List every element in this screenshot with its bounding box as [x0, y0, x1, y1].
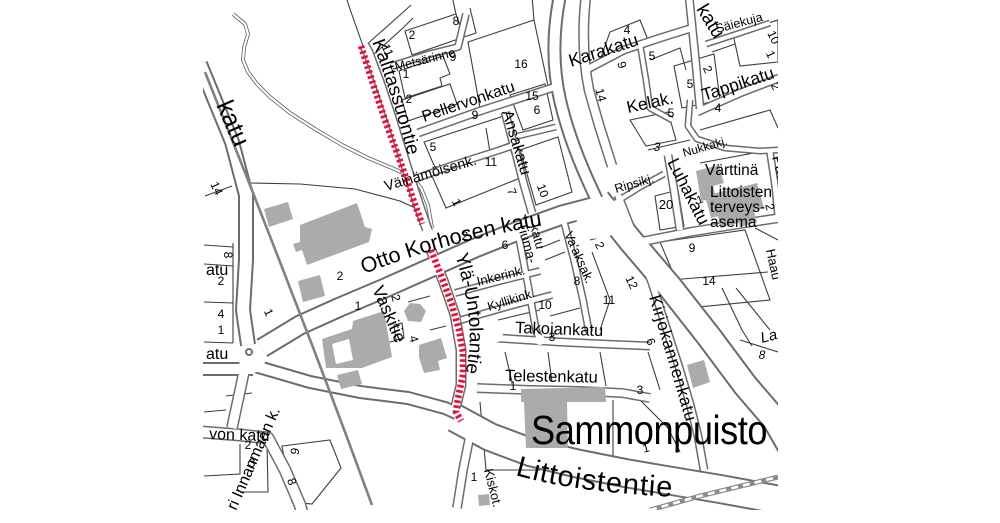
svg-text:3: 3: [249, 456, 256, 470]
svg-text:Telestenkatu: Telestenkatu: [505, 367, 598, 387]
svg-text:14: 14: [702, 274, 716, 288]
svg-text:15: 15: [525, 89, 539, 103]
svg-text:2: 2: [406, 92, 413, 106]
svg-text:1: 1: [510, 379, 517, 393]
svg-text:9: 9: [472, 108, 479, 122]
svg-text:9: 9: [689, 241, 696, 255]
svg-text:atu: atu: [206, 346, 228, 363]
svg-text:5: 5: [668, 106, 675, 120]
svg-text:10: 10: [538, 298, 552, 312]
svg-text:1: 1: [471, 470, 478, 484]
svg-text:5: 5: [649, 49, 656, 63]
svg-text:3: 3: [637, 383, 644, 397]
svg-text:6: 6: [534, 103, 541, 117]
svg-text:11: 11: [603, 293, 616, 307]
svg-text:1: 1: [218, 323, 225, 337]
svg-text:8: 8: [221, 252, 235, 259]
svg-text:3: 3: [654, 140, 661, 154]
svg-text:1: 1: [355, 299, 362, 313]
svg-text:2: 2: [337, 269, 344, 283]
svg-text:9: 9: [450, 50, 457, 64]
svg-text:8: 8: [759, 348, 766, 362]
svg-text:2: 2: [462, 229, 469, 243]
svg-text:2: 2: [409, 28, 416, 42]
svg-text:11: 11: [485, 155, 498, 169]
svg-text:4: 4: [218, 307, 225, 321]
svg-text:5: 5: [687, 77, 694, 91]
svg-text:3: 3: [549, 330, 556, 344]
svg-text:Takojankatu: Takojankatu: [515, 319, 604, 340]
svg-text:6: 6: [502, 238, 509, 252]
svg-text:2: 2: [245, 438, 252, 452]
svg-text:1: 1: [403, 67, 410, 81]
svg-text:Värttinä: Värttinä: [705, 162, 759, 179]
svg-text:von katu: von katu: [209, 426, 270, 445]
svg-text:8: 8: [574, 274, 581, 288]
svg-text:20: 20: [659, 197, 673, 212]
svg-text:5: 5: [430, 140, 437, 154]
svg-text:4: 4: [624, 23, 631, 37]
svg-text:4: 4: [715, 101, 722, 115]
svg-text:16: 16: [514, 57, 528, 71]
svg-text:8: 8: [453, 14, 460, 28]
svg-text:2: 2: [218, 274, 225, 288]
svg-text:asema: asema: [710, 214, 757, 231]
